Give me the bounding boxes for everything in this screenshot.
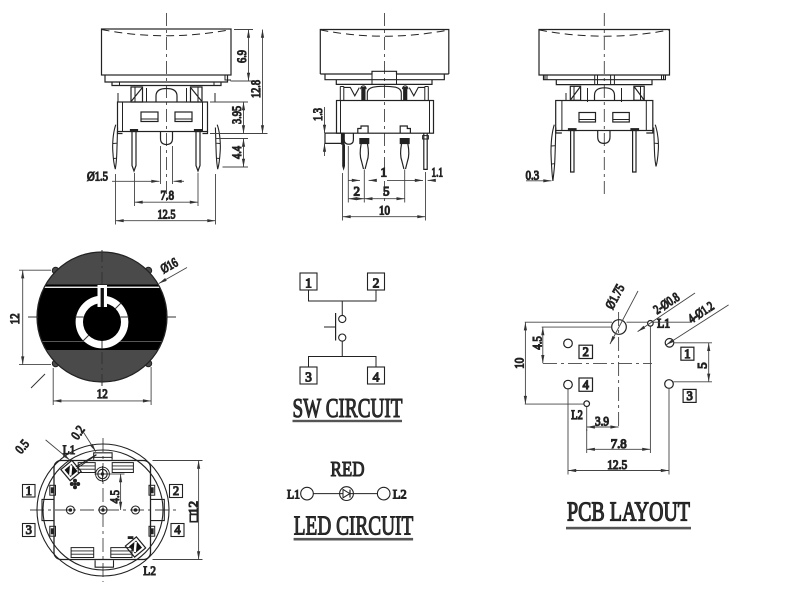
svg-text:4.4: 4.4 xyxy=(229,146,244,159)
svg-text:12.5: 12.5 xyxy=(607,457,627,472)
svg-text:1: 1 xyxy=(381,165,388,180)
svg-text:L1: L1 xyxy=(287,487,300,502)
svg-text:4: 4 xyxy=(583,378,590,392)
svg-text:4: 4 xyxy=(373,369,380,384)
svg-text:4.5: 4.5 xyxy=(107,490,122,504)
svg-text:3: 3 xyxy=(26,523,32,537)
svg-text:5: 5 xyxy=(383,183,390,198)
svg-text:0.5: 0.5 xyxy=(12,436,32,456)
svg-text:PCB LAYOUT: PCB LAYOUT xyxy=(567,497,690,527)
svg-text:10: 10 xyxy=(512,358,527,369)
svg-text:3.9: 3.9 xyxy=(595,413,609,428)
svg-text:1: 1 xyxy=(26,484,32,498)
svg-text:1.3: 1.3 xyxy=(310,108,325,121)
svg-text:7.8: 7.8 xyxy=(161,188,175,203)
svg-text:L2: L2 xyxy=(393,487,407,502)
svg-text:10: 10 xyxy=(379,202,390,217)
svg-text:4: 4 xyxy=(174,523,181,537)
svg-text:L1: L1 xyxy=(657,316,670,331)
svg-text:1.1: 1.1 xyxy=(432,165,444,180)
svg-text:SW CIRCUIT: SW CIRCUIT xyxy=(293,393,403,423)
svg-text:Ø1.5: Ø1.5 xyxy=(87,169,108,184)
svg-text:4-Ø1.2: 4-Ø1.2 xyxy=(685,298,717,326)
svg-text:3: 3 xyxy=(686,389,692,403)
svg-text:L2: L2 xyxy=(571,407,583,422)
svg-text:2: 2 xyxy=(173,484,179,498)
svg-text:12.8: 12.8 xyxy=(248,80,263,98)
svg-text:2: 2 xyxy=(373,275,380,290)
svg-text:12: 12 xyxy=(97,386,108,401)
svg-text:1: 1 xyxy=(305,275,312,290)
svg-text:2: 2 xyxy=(354,183,361,198)
svg-text:0.3: 0.3 xyxy=(526,167,540,182)
svg-text:L1: L1 xyxy=(63,442,76,457)
svg-text:RED: RED xyxy=(331,457,365,481)
svg-text:Ø1.75: Ø1.75 xyxy=(602,281,627,311)
svg-text:L2: L2 xyxy=(143,563,156,578)
svg-text:LED CIRCUIT: LED CIRCUIT xyxy=(294,511,414,541)
svg-text:3: 3 xyxy=(305,369,312,384)
svg-text:12.5: 12.5 xyxy=(158,206,176,221)
svg-text:7.8: 7.8 xyxy=(611,436,627,451)
svg-text:6.9: 6.9 xyxy=(234,50,249,63)
svg-text:12: 12 xyxy=(7,313,22,324)
svg-text:2: 2 xyxy=(583,345,589,359)
svg-text:□12: □12 xyxy=(186,501,200,522)
svg-text:4.5: 4.5 xyxy=(530,336,545,350)
svg-text:0.2: 0.2 xyxy=(68,423,88,443)
svg-text:3.95: 3.95 xyxy=(229,106,244,124)
svg-text:5: 5 xyxy=(695,362,710,369)
svg-text:1: 1 xyxy=(684,347,690,361)
